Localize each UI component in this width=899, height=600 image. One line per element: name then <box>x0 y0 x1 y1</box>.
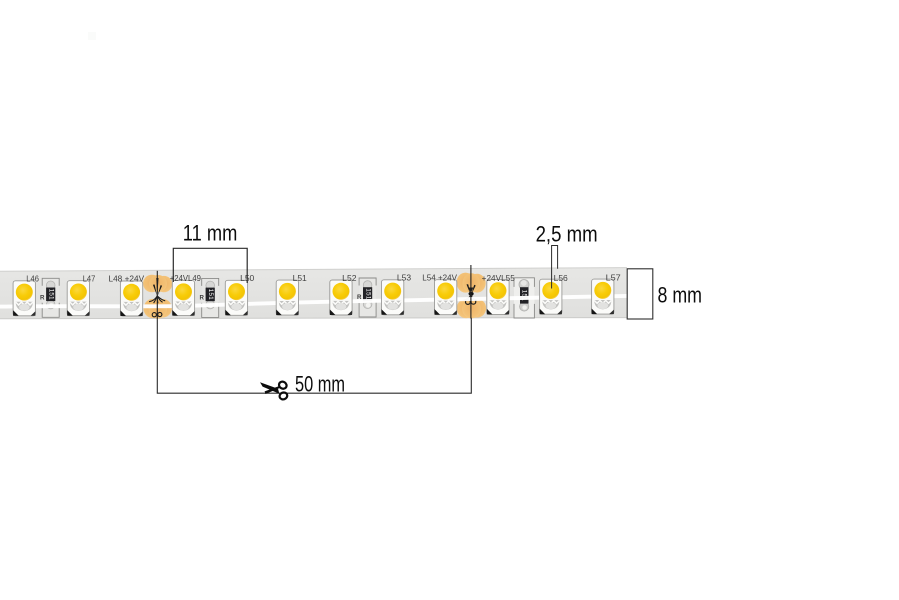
svg-text:L53: L53 <box>397 274 412 283</box>
svg-text:L56: L56 <box>554 274 569 283</box>
svg-text:L48 +24V: L48 +24V <box>109 274 145 283</box>
svg-text:L47: L47 <box>83 275 96 284</box>
svg-text:11 mm: 11 mm <box>183 221 238 246</box>
svg-text:+24VL55: +24VL55 <box>482 274 516 283</box>
svg-text:R: R <box>40 295 45 302</box>
svg-text:L57: L57 <box>606 274 622 283</box>
svg-text:2,5 mm: 2,5 mm <box>536 221 598 246</box>
svg-text:8 mm: 8 mm <box>658 283 703 308</box>
svg-text:+24VL49: +24VL49 <box>170 274 202 283</box>
svg-text:L52: L52 <box>342 274 357 283</box>
svg-text:L54 +24V: L54 +24V <box>422 274 457 283</box>
svg-text:50 mm: 50 mm <box>295 371 345 396</box>
svg-text:R: R <box>200 295 205 302</box>
svg-text:L51: L51 <box>293 274 308 283</box>
svg-text:L46: L46 <box>26 275 39 284</box>
